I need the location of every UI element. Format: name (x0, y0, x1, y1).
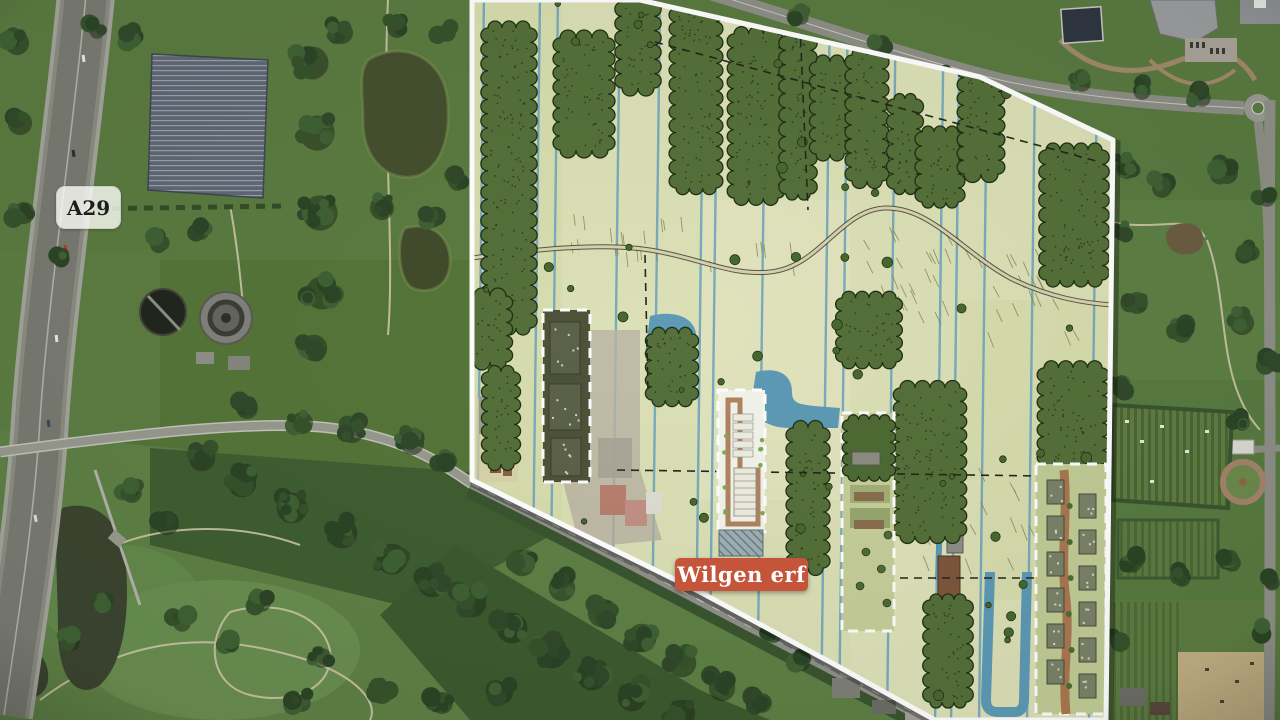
development-plot-west[interactable] (543, 310, 590, 482)
plan-pond-hatched (719, 530, 763, 556)
aerial-map-view[interactable]: Wilgen erf A29 (0, 0, 1280, 720)
development-plot-east[interactable] (1036, 464, 1106, 714)
solar-farm (148, 54, 268, 198)
road-shield-a29: A29 (56, 186, 121, 229)
site-marker-label: Wilgen erf (677, 562, 805, 587)
development-plot-central[interactable] (718, 390, 765, 532)
site-marker-wilgen-erf[interactable]: Wilgen erf (675, 558, 808, 591)
road-shield-label: A29 (67, 196, 110, 220)
development-plot-mid[interactable] (842, 413, 896, 631)
satellite-plan-canvas (0, 0, 1280, 720)
